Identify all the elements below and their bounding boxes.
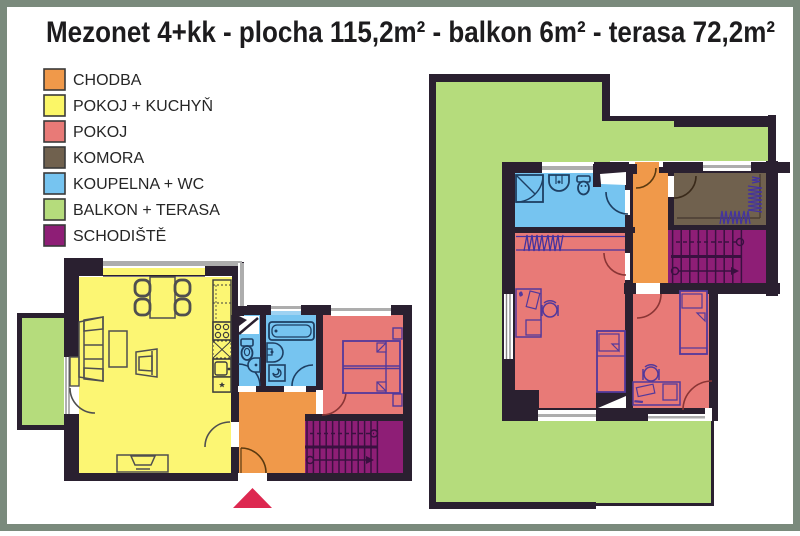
svg-text:POKOJ: POKOJ bbox=[73, 124, 127, 141]
svg-text:POKOJ + KUCHYŇ: POKOJ + KUCHYŇ bbox=[73, 96, 213, 115]
svg-text:Mezonet 4+kk - plocha 115,2m²: Mezonet 4+kk - plocha 115,2m² - balkon 6… bbox=[46, 16, 775, 49]
svg-text:KOMORA: KOMORA bbox=[73, 150, 144, 167]
svg-text:CHODBA: CHODBA bbox=[73, 72, 142, 89]
svg-text:BALKON + TERASA: BALKON + TERASA bbox=[73, 202, 220, 219]
svg-text:SCHODIŠTĚ: SCHODIŠTĚ bbox=[73, 226, 166, 245]
svg-text:KOUPELNA + WC: KOUPELNA + WC bbox=[73, 176, 204, 193]
